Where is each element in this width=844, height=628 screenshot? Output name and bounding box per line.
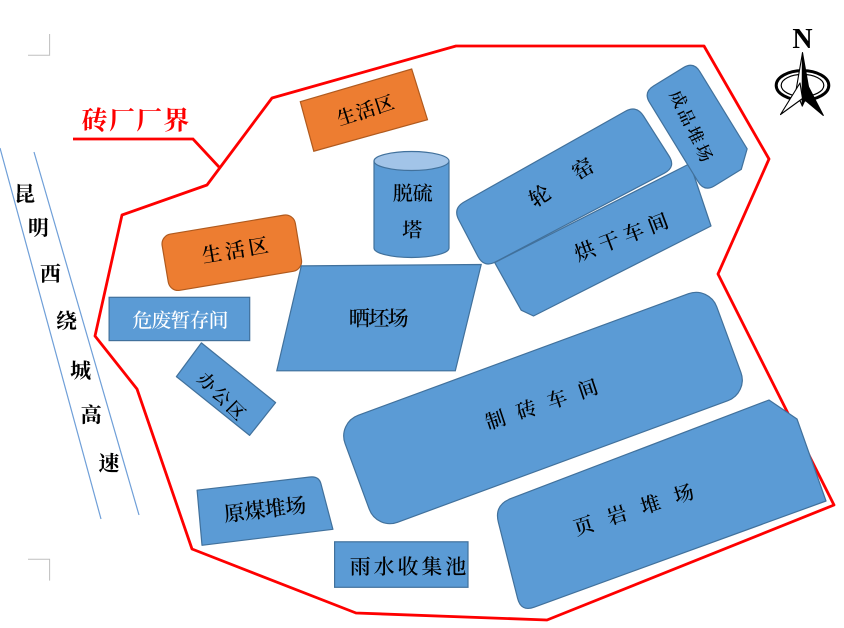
svg-text:N: N — [792, 24, 812, 55]
